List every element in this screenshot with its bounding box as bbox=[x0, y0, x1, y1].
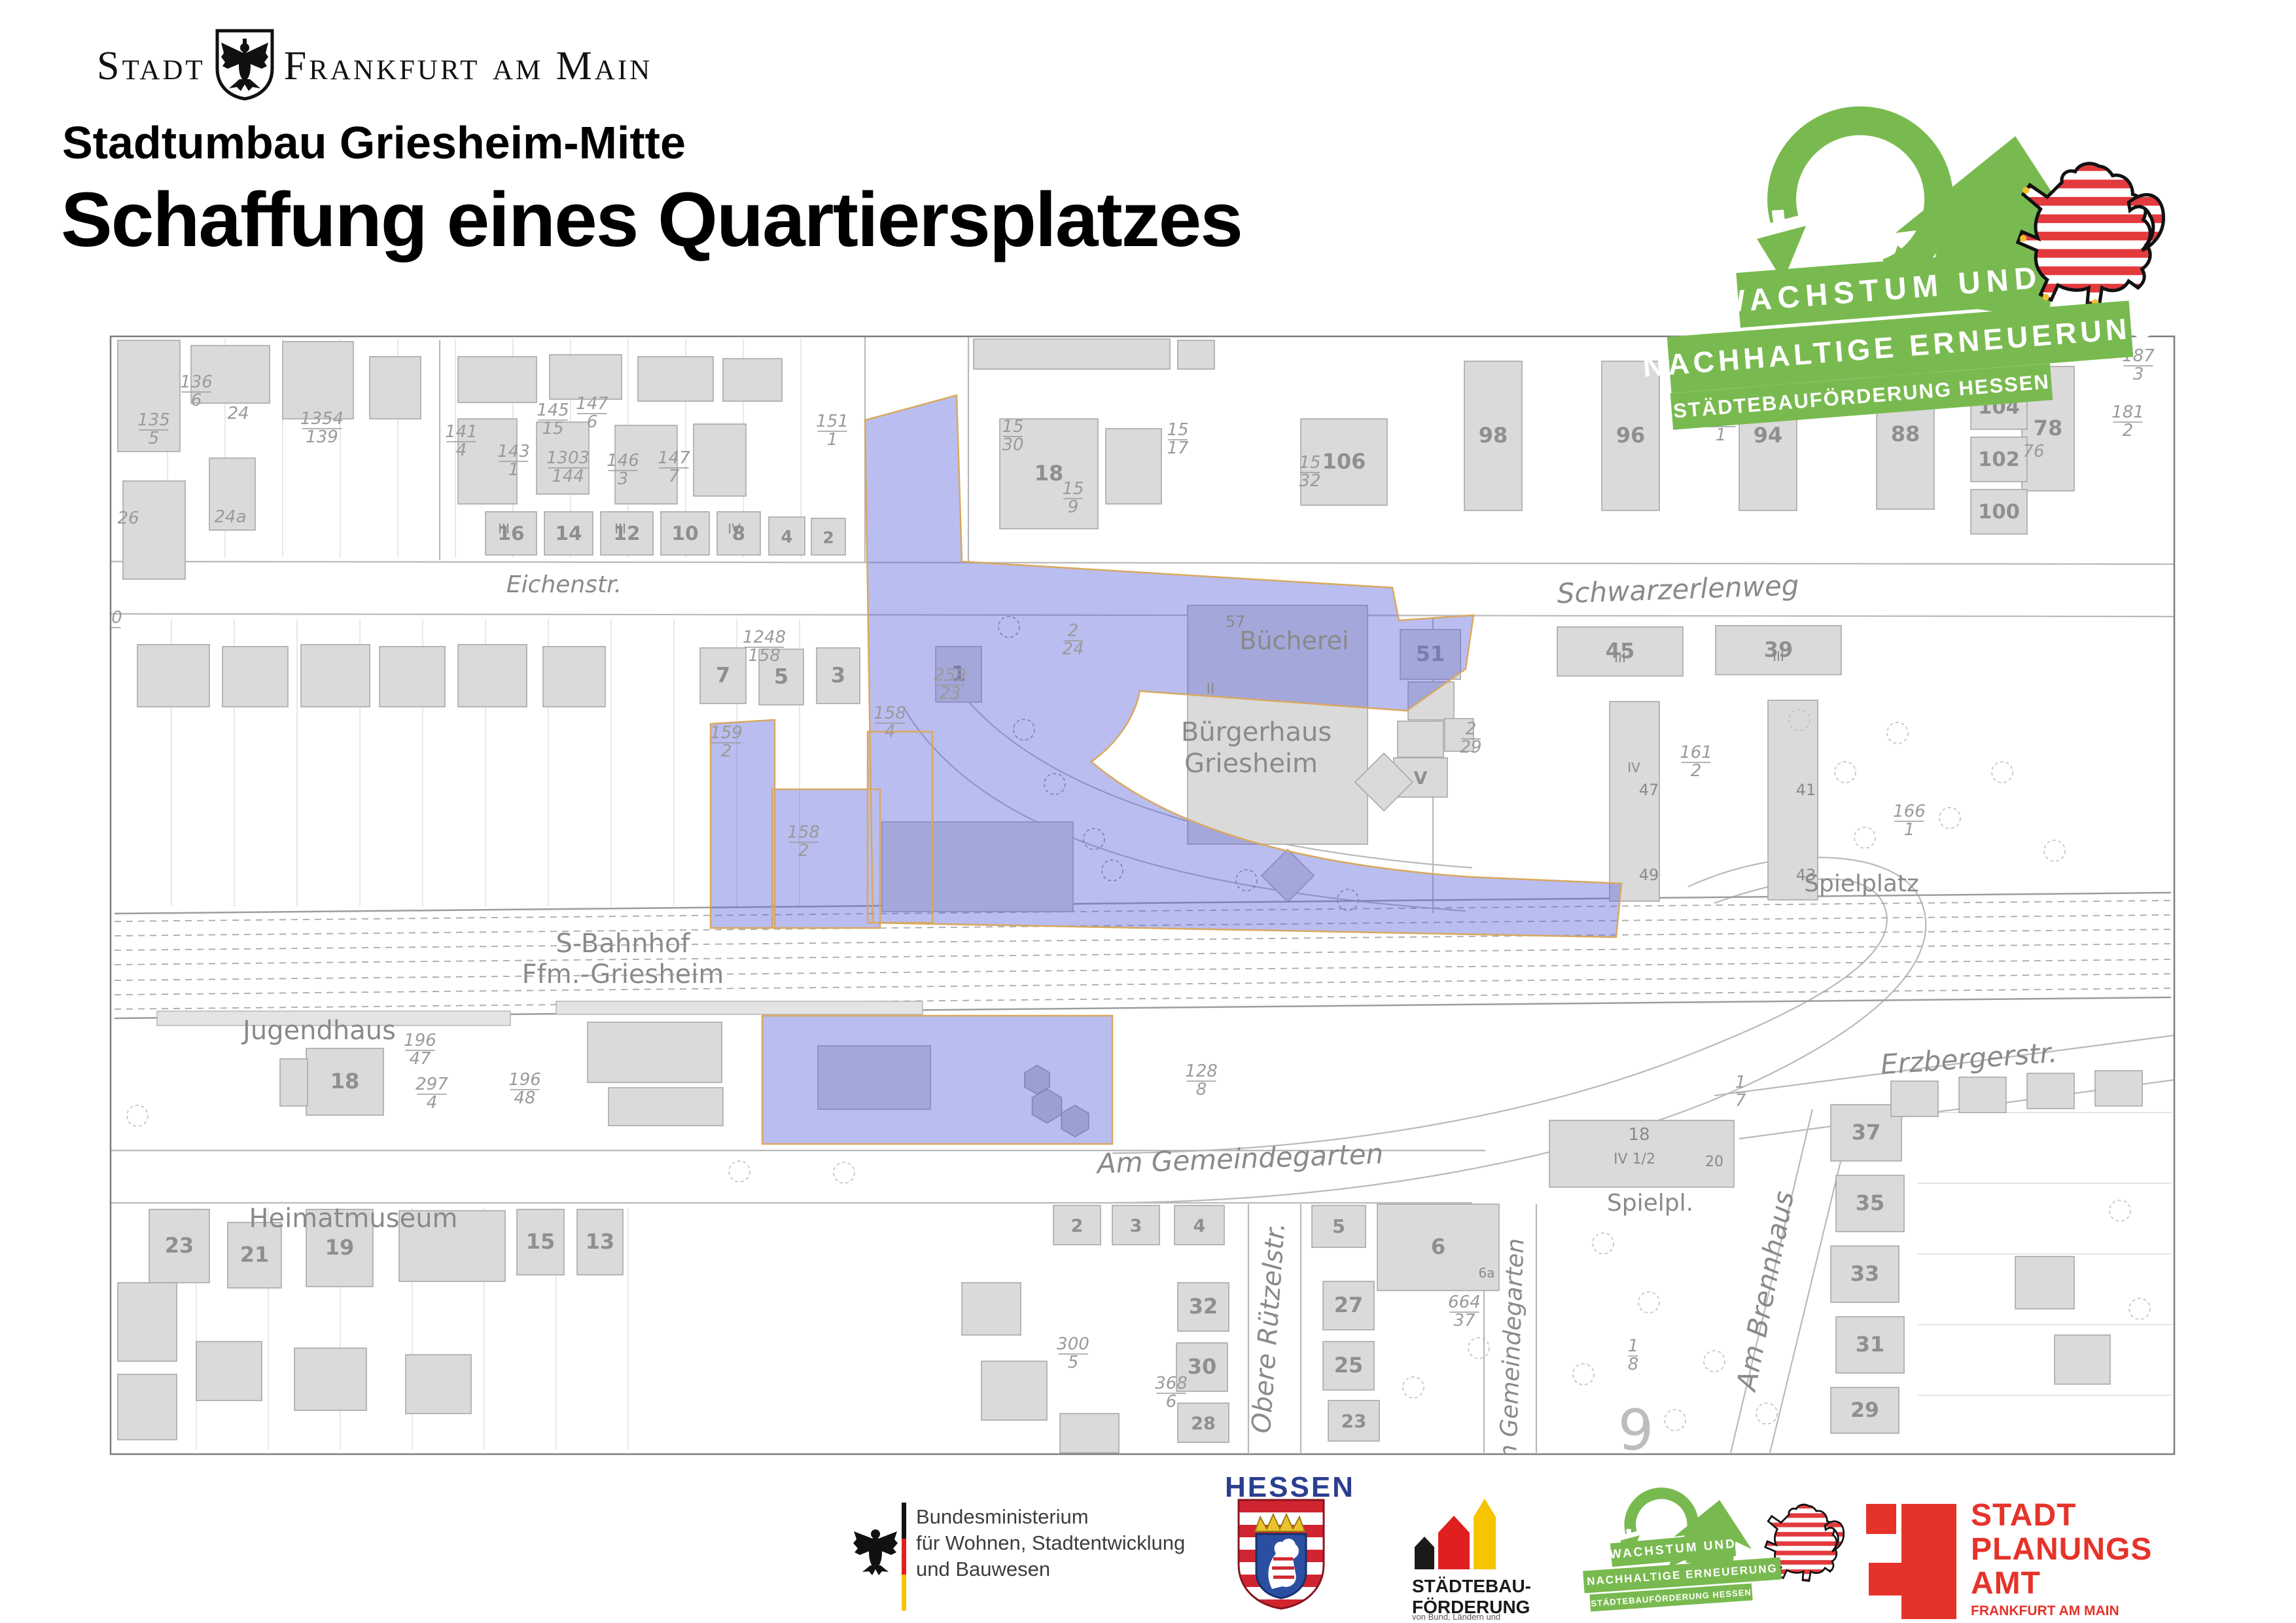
bund-text-line1: Bundesministerium bbox=[916, 1504, 1089, 1530]
stadtplanungsamt-icon bbox=[1866, 1504, 1956, 1619]
spa-line3: AMT bbox=[1971, 1565, 2041, 1601]
flag-bar-gold bbox=[902, 1575, 906, 1611]
stf-sub1: von Bund, Ländern und bbox=[1412, 1612, 1500, 1622]
staedtebaufoerderung-icon bbox=[1415, 1499, 1496, 1569]
poster-page: 1614121084218106989694887810410210075315… bbox=[0, 0, 2296, 1623]
spa-line2: PLANUNGS bbox=[1971, 1531, 2152, 1567]
bund-logo-art bbox=[0, 0, 2296, 1623]
bund-text-line2: für Wohnen, Stadtentwicklung bbox=[916, 1530, 1185, 1556]
spa-line1: STADT bbox=[1971, 1497, 2076, 1533]
flag-bar-black bbox=[902, 1503, 906, 1539]
bund-text-line3: und Bauwesen bbox=[916, 1556, 1050, 1582]
hessen-shield-icon bbox=[1239, 1500, 1324, 1612]
bundesadler-icon bbox=[853, 1529, 898, 1575]
spa-sub: FRANKFURT AM MAIN bbox=[1971, 1603, 2119, 1619]
flag-bar-red bbox=[902, 1539, 906, 1575]
hessen-wordmark: HESSEN bbox=[1225, 1471, 1355, 1504]
stf-line1: STÄDTEBAU- bbox=[1412, 1576, 1531, 1597]
